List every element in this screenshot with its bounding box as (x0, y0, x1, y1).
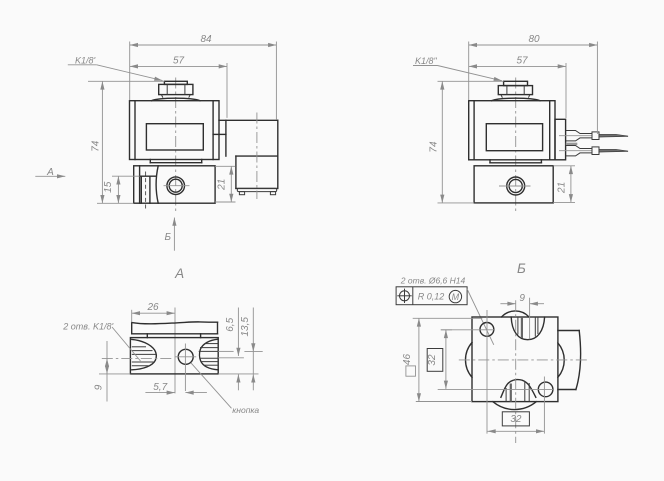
svg-text:9: 9 (93, 384, 104, 390)
svg-text:32: 32 (510, 414, 522, 425)
svg-text:21: 21 (556, 182, 567, 194)
svg-text:46: 46 (402, 354, 413, 366)
svg-text:кнопка: кнопка (232, 405, 259, 415)
svg-text:M: M (452, 292, 460, 302)
svg-text:32: 32 (427, 354, 438, 366)
svg-text:R 0,12: R 0,12 (418, 292, 445, 302)
svg-text:21: 21 (217, 179, 228, 191)
svg-text:А: А (174, 266, 184, 281)
svg-text:K1/8': K1/8' (75, 56, 96, 66)
svg-text:K1/8": K1/8" (415, 56, 438, 66)
svg-text:84: 84 (200, 34, 212, 45)
svg-text:74: 74 (90, 140, 101, 152)
svg-text:74: 74 (429, 141, 440, 153)
svg-text:9: 9 (519, 293, 525, 304)
svg-text:80: 80 (528, 34, 540, 45)
svg-text:57: 57 (173, 56, 185, 67)
svg-text:26: 26 (146, 302, 159, 313)
svg-text:Б: Б (517, 261, 526, 276)
svg-text:13,5: 13,5 (240, 317, 251, 337)
svg-text:5,7: 5,7 (153, 382, 167, 393)
svg-text:2 отв. Ø6,6 H14: 2 отв. Ø6,6 H14 (400, 276, 466, 286)
svg-text:57: 57 (516, 56, 528, 67)
svg-text:Б: Б (164, 232, 171, 243)
svg-text:2 отв. K1/8': 2 отв. K1/8' (62, 321, 113, 331)
svg-text:6,5: 6,5 (225, 317, 236, 331)
svg-text:15: 15 (103, 181, 114, 193)
